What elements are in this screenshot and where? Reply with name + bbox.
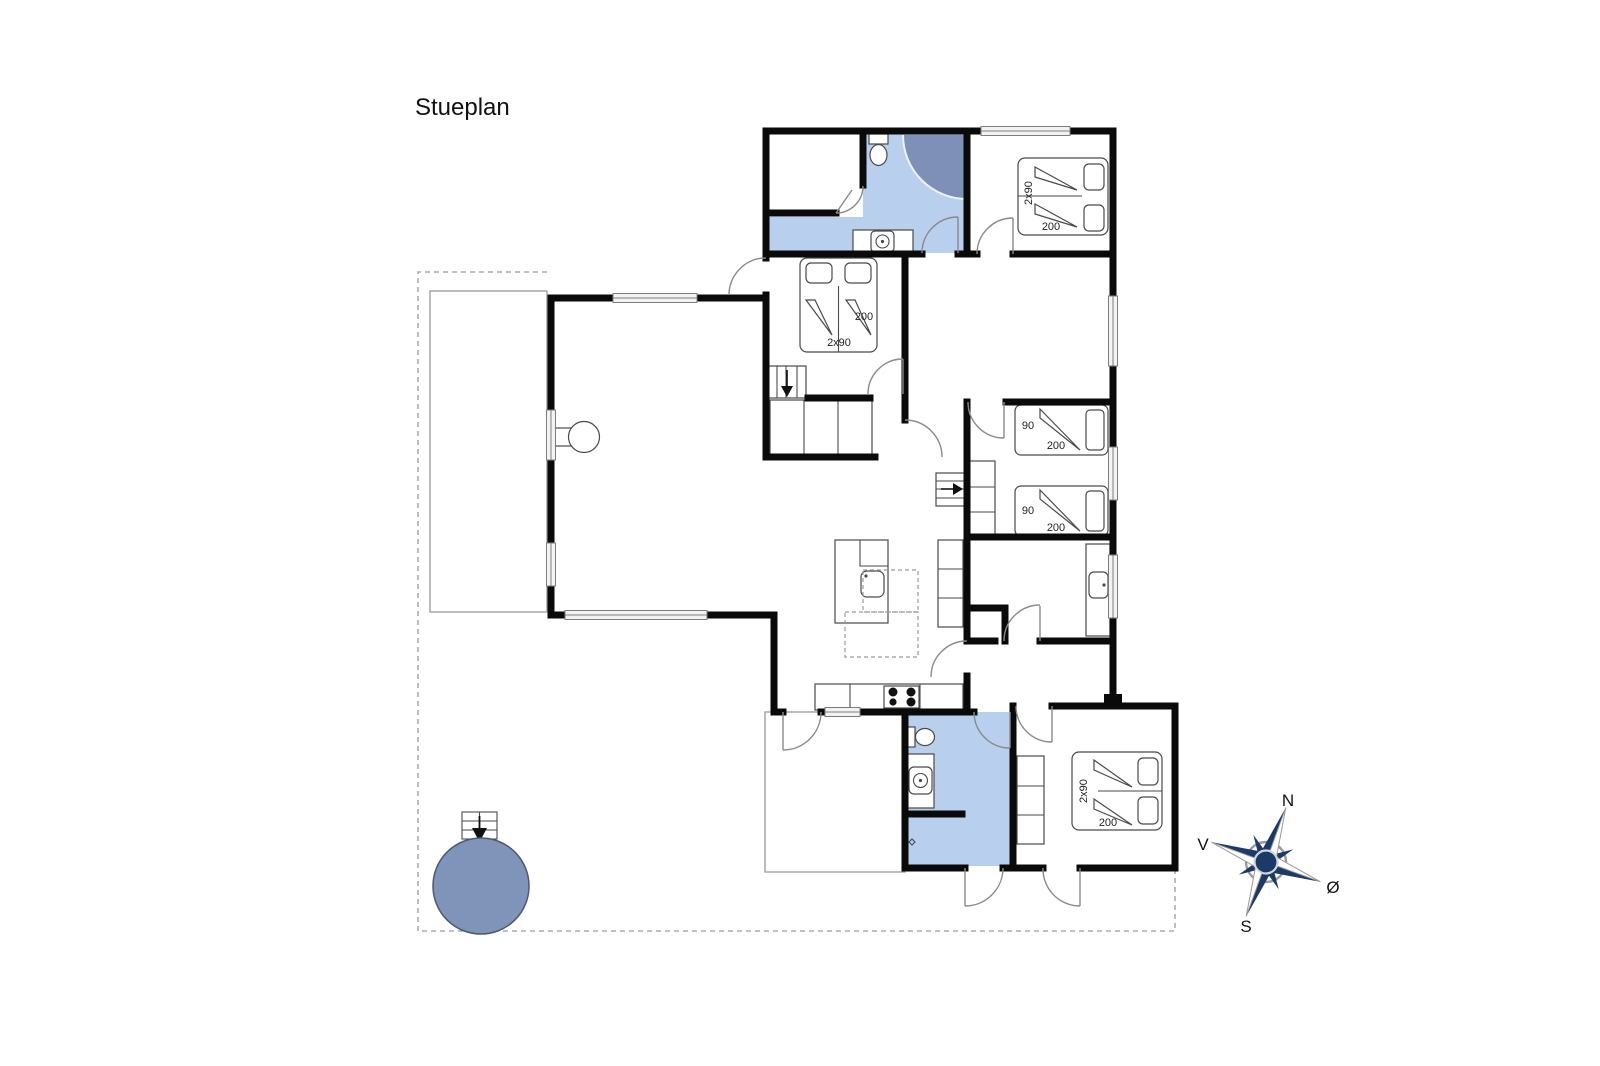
- door-arc: [931, 641, 967, 677]
- window-icon: [547, 410, 556, 460]
- door-arc: [868, 359, 903, 394]
- floorplan-page: Stueplan: [0, 0, 1600, 1066]
- bed-width-label: 2x90: [1023, 181, 1035, 205]
- bed-length-label: 200: [1099, 817, 1117, 829]
- compass-rose: N S V Ø: [1192, 788, 1341, 937]
- bottom-terrace-outline: [765, 712, 905, 872]
- window-icon: [1109, 555, 1118, 618]
- door-arc: [1004, 605, 1040, 641]
- bed-kids-top: 90 200: [1015, 405, 1108, 455]
- door-arc: [977, 218, 1013, 254]
- bed-kids-bottom: 90 200: [1015, 486, 1108, 536]
- floorplan-svg: Stueplan: [0, 0, 1600, 1066]
- kitchen-island: [835, 540, 888, 623]
- bed-top-right: 2x90 200: [1018, 158, 1108, 235]
- window-icon: [547, 543, 556, 586]
- bed-length-label: 200: [855, 311, 873, 323]
- chimney-block: [1104, 694, 1122, 706]
- entrance-door-arc: [729, 258, 766, 295]
- door-arc: [1016, 706, 1052, 742]
- left-terrace-outline: [430, 291, 547, 612]
- bed-length-label: 200: [1047, 522, 1065, 534]
- toilet-top-icon: [869, 134, 888, 166]
- kitchen-cabinet-column: [938, 540, 963, 627]
- compass-south-label: S: [1240, 917, 1251, 936]
- door-arc: [783, 712, 821, 750]
- bed-length-label: 200: [1042, 221, 1060, 233]
- bed-width-label: 2x90: [1078, 779, 1090, 803]
- bed-bottom-right: 2x90 200: [1072, 752, 1162, 830]
- window-icon: [1109, 296, 1118, 366]
- window-icon: [613, 294, 697, 303]
- wardrobe-bottom-bedroom: [1017, 756, 1044, 844]
- door-arc: [836, 186, 863, 213]
- sink-vanity-utility-icon: [1086, 544, 1110, 636]
- compass-hub: [1255, 851, 1278, 874]
- hot-tub-circle: [433, 838, 529, 934]
- compass-east-label: Ø: [1326, 878, 1339, 897]
- compass-north-label: N: [1282, 791, 1294, 810]
- door-arc: [905, 420, 942, 457]
- kitchen-counter: [815, 684, 963, 710]
- exterior-door-arc: [965, 868, 1003, 906]
- bed-middle: 200 2x90: [800, 258, 877, 352]
- sink-vanity-top-icon: [853, 230, 913, 253]
- bed-width-label: 90: [1022, 420, 1034, 432]
- sink-vanity-bottom-icon: [907, 754, 934, 808]
- wood-stove-icon: [551, 422, 600, 453]
- toilet-bottom-icon: [907, 727, 935, 747]
- door-arc: [968, 402, 1004, 438]
- exterior-door-arc: [1043, 868, 1080, 906]
- page-title: Stueplan: [415, 94, 510, 121]
- window-icon: [565, 611, 707, 620]
- stairs-hall: [936, 473, 966, 506]
- stairs-middle-bedroom: [768, 366, 806, 398]
- window-icon: [981, 127, 1070, 136]
- closet-middle: [770, 400, 872, 455]
- window-icon: [1109, 447, 1118, 500]
- bed-length-label: 200: [1047, 440, 1065, 452]
- bed-width-label: 90: [1022, 505, 1034, 517]
- wardrobe-kids-room: [969, 461, 995, 537]
- cooktop-icon: [884, 686, 919, 708]
- window-icon: [825, 708, 860, 717]
- compass-west-label: V: [1197, 835, 1209, 854]
- bed-width-label: 2x90: [827, 337, 851, 349]
- hot-tub: [433, 812, 529, 934]
